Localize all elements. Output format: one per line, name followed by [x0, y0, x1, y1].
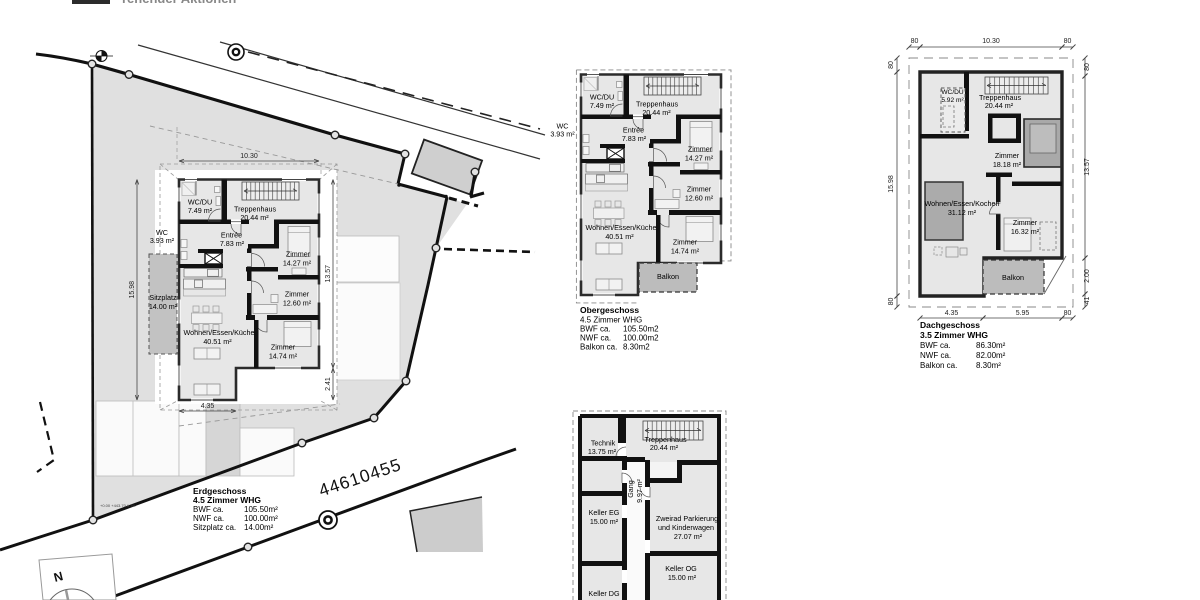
- svg-text:40.51 m²: 40.51 m²: [605, 232, 634, 241]
- svg-text:Wohnen/Essen/Küche: Wohnen/Essen/Küche: [184, 328, 255, 337]
- svg-text:Zimmer: Zimmer: [995, 151, 1020, 160]
- svg-text:3.93 m²: 3.93 m²: [550, 130, 575, 139]
- svg-text:16.32 m²: 16.32 m²: [1011, 227, 1040, 236]
- svg-text:WC/DU: WC/DU: [941, 89, 964, 96]
- svg-text:4.35: 4.35: [201, 403, 215, 410]
- svg-text:BWF ca.: BWF ca.: [580, 325, 611, 334]
- svg-text:82.00m²: 82.00m²: [976, 351, 1006, 360]
- svg-text:13.57: 13.57: [325, 265, 332, 283]
- svg-text:105.50m²: 105.50m²: [244, 505, 278, 514]
- svg-text:13.57: 13.57: [1084, 158, 1091, 176]
- svg-text:15.98: 15.98: [888, 175, 895, 193]
- svg-text:Keller EG: Keller EG: [589, 508, 620, 517]
- svg-text:100.00m²: 100.00m²: [244, 514, 278, 523]
- svg-text:14.27 m²: 14.27 m²: [685, 154, 714, 163]
- svg-text:8.30m2: 8.30m2: [623, 343, 650, 352]
- svg-text:+0.00 +443.70 ü. M.: +0.00 +443.70 ü. M.: [100, 503, 136, 508]
- svg-text:80: 80: [1064, 38, 1072, 45]
- svg-text:40.51 m²: 40.51 m²: [203, 337, 232, 346]
- svg-text:14.00 m²: 14.00 m²: [149, 302, 178, 311]
- svg-text:105.50m2: 105.50m2: [623, 325, 659, 334]
- svg-text:14.00m²: 14.00m²: [244, 523, 274, 532]
- svg-text:Balkon: Balkon: [657, 272, 679, 281]
- svg-text:Balkon ca.: Balkon ca.: [920, 361, 957, 370]
- svg-text:13.75 m²: 13.75 m²: [588, 447, 617, 456]
- svg-text:80: 80: [1084, 63, 1091, 71]
- svg-text:20.44 m²: 20.44 m²: [642, 108, 671, 117]
- svg-text:Zimmer: Zimmer: [1013, 218, 1038, 227]
- svg-text:und Kinderwagen: und Kinderwagen: [658, 523, 714, 532]
- svg-text:Keller OG: Keller OG: [665, 564, 697, 573]
- svg-text:2.41: 2.41: [325, 377, 332, 391]
- svg-text:NWF ca.: NWF ca.: [580, 334, 611, 343]
- svg-text:80: 80: [888, 298, 895, 306]
- svg-text:Zimmer: Zimmer: [687, 185, 712, 194]
- svg-text:BWF ca.: BWF ca.: [920, 341, 951, 350]
- svg-text:NWF ca.: NWF ca.: [193, 514, 224, 523]
- svg-text:BWF ca.: BWF ca.: [193, 505, 224, 514]
- svg-text:Balkon ca.: Balkon ca.: [580, 343, 617, 352]
- svg-text:7.83 m²: 7.83 m²: [622, 134, 647, 143]
- svg-text:80: 80: [911, 38, 919, 45]
- svg-text:14.74 m²: 14.74 m²: [671, 247, 700, 256]
- svg-text:Zimmer: Zimmer: [286, 250, 311, 259]
- svg-text:12.60 m²: 12.60 m²: [685, 194, 714, 203]
- svg-text:10.30: 10.30: [982, 38, 1000, 45]
- svg-text:31.12 m²: 31.12 m²: [948, 208, 977, 217]
- svg-text:7.83 m²: 7.83 m²: [220, 239, 245, 248]
- svg-text:20.44 m²: 20.44 m²: [650, 443, 679, 452]
- svg-text:5.92 m²: 5.92 m²: [941, 97, 964, 104]
- svg-text:86.30m²: 86.30m²: [976, 341, 1006, 350]
- svg-text:80: 80: [1064, 310, 1072, 317]
- svg-text:Zimmer: Zimmer: [285, 290, 310, 299]
- svg-text:4.5 Zimmer WHG: 4.5 Zimmer WHG: [193, 495, 261, 505]
- svg-text:3.5 Zimmer WHG: 3.5 Zimmer WHG: [920, 330, 988, 340]
- svg-text:2.00: 2.00: [1084, 269, 1091, 283]
- svg-text:4.35: 4.35: [945, 310, 959, 317]
- svg-text:12.60 m²: 12.60 m²: [283, 299, 312, 308]
- svg-text:7.49 m²: 7.49 m²: [188, 206, 213, 215]
- svg-text:Dachgeschoss: Dachgeschoss: [920, 320, 980, 330]
- svg-text:NWF ca.: NWF ca.: [920, 351, 951, 360]
- svg-text:3.93 m²: 3.93 m²: [150, 236, 175, 245]
- svg-text:100.00m2: 100.00m2: [623, 334, 659, 343]
- svg-text:41: 41: [1084, 297, 1091, 305]
- svg-text:8.30m²: 8.30m²: [976, 361, 1001, 370]
- svg-text:Keller DG: Keller DG: [588, 589, 620, 598]
- svg-text:Gang: Gang: [626, 480, 635, 498]
- svg-text:Obergeschoss: Obergeschoss: [580, 305, 639, 315]
- svg-text:7.49 m²: 7.49 m²: [590, 101, 615, 110]
- svg-text:Sitzplatz ca.: Sitzplatz ca.: [193, 523, 236, 532]
- svg-text:14.74 m²: 14.74 m²: [269, 352, 298, 361]
- svg-text:15.00 m²: 15.00 m²: [668, 573, 697, 582]
- svg-text:Balkon: Balkon: [1002, 273, 1024, 282]
- svg-text:10.30: 10.30: [240, 153, 258, 160]
- svg-text:14.27 m²: 14.27 m²: [283, 259, 312, 268]
- svg-text:80: 80: [888, 61, 895, 69]
- svg-text:15.00 m²: 15.00 m²: [590, 517, 619, 526]
- svg-text:15.98: 15.98: [129, 281, 136, 299]
- svg-text:9.97 m²: 9.97 m²: [637, 478, 644, 502]
- svg-text:rehender Aktionen: rehender Aktionen: [122, 0, 236, 6]
- svg-text:Zimmer: Zimmer: [271, 343, 296, 352]
- svg-text:27.07 m²: 27.07 m²: [674, 532, 703, 541]
- svg-text:Zimmer: Zimmer: [673, 238, 698, 247]
- svg-text:Zimmer: Zimmer: [688, 145, 713, 154]
- svg-text:Sitzplatz: Sitzplatz: [149, 293, 177, 302]
- svg-text:5.95: 5.95: [1016, 310, 1030, 317]
- svg-text:20.44 m²: 20.44 m²: [240, 213, 269, 222]
- svg-text:4.5 Zimmer WHG: 4.5 Zimmer WHG: [580, 316, 642, 325]
- svg-text:Zweirad Parkierung: Zweirad Parkierung: [656, 514, 718, 523]
- svg-text:18.18 m²: 18.18 m²: [993, 160, 1022, 169]
- svg-text:Wohnen/Essen/Kochen: Wohnen/Essen/Kochen: [925, 199, 1000, 208]
- svg-text:20.44 m²: 20.44 m²: [985, 101, 1014, 110]
- svg-text:Wohnen/Essen/Küche: Wohnen/Essen/Küche: [586, 223, 657, 232]
